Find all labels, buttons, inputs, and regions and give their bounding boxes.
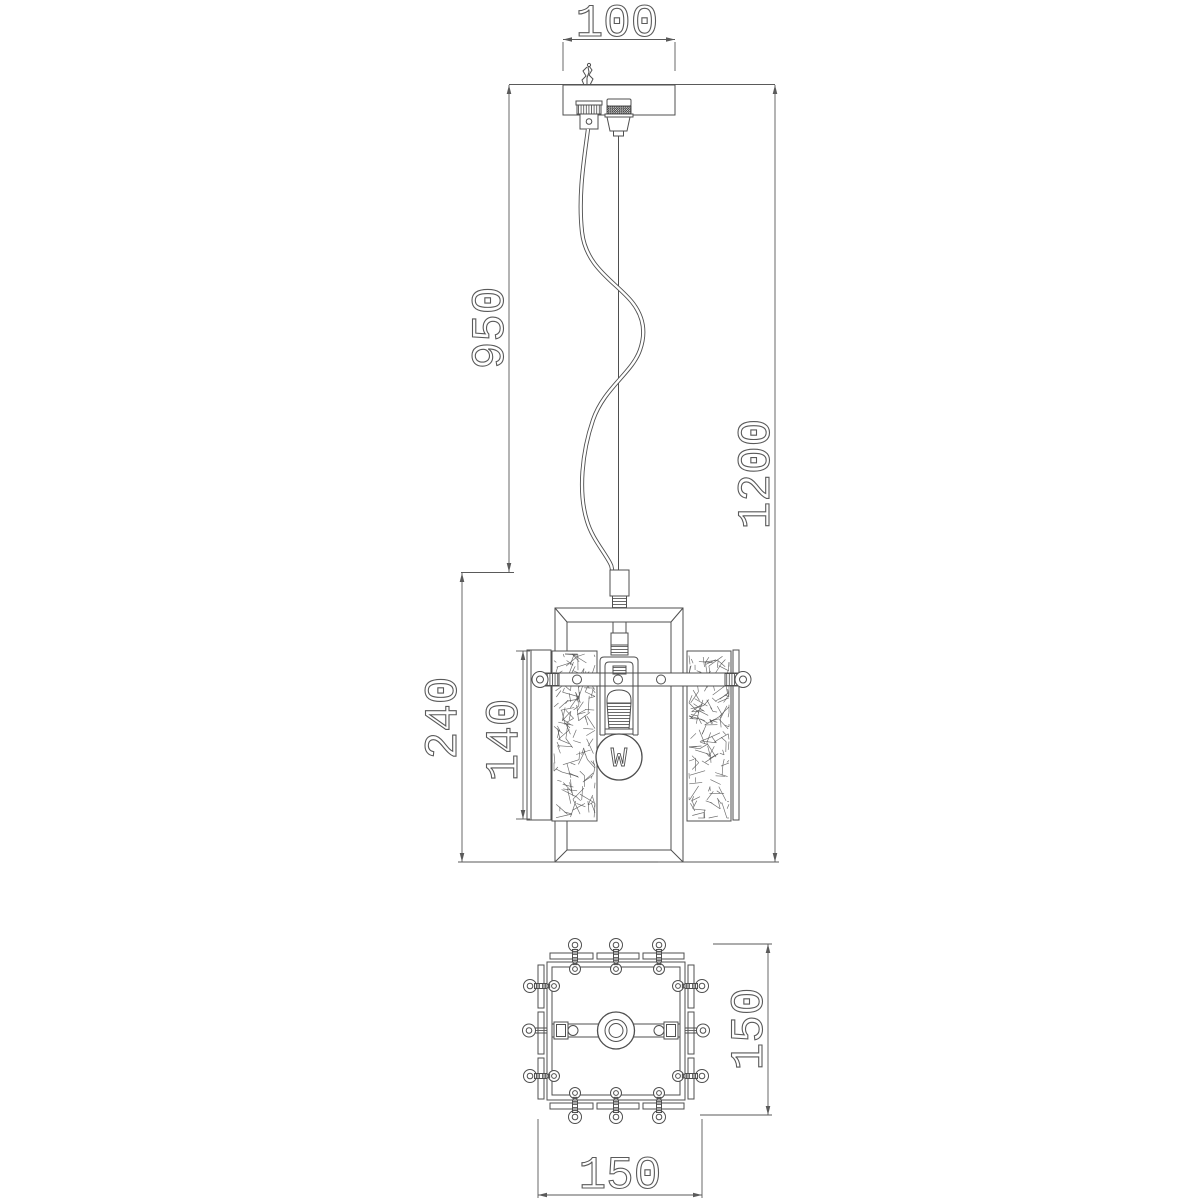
strain-relief-fitting (576, 101, 602, 129)
cable-gland-fitting (605, 99, 633, 136)
socket-bottom (598, 1012, 635, 1049)
dim-label-150-bottom: 150 (579, 1150, 662, 1200)
power-wire (581, 129, 644, 572)
dim-label-240: 240 (418, 677, 470, 760)
dim-base-width: 150 (538, 1119, 702, 1200)
dim-label-150-right: 150 (724, 988, 776, 1071)
bulb-wattage-label: W (611, 745, 628, 775)
technical-drawing-canvas: W 100 950 1200 (0, 0, 1200, 1200)
dim-label-1200: 1200 (731, 419, 783, 529)
light-bulb: W (596, 734, 642, 780)
dim-canopy-width: 100 (563, 0, 675, 71)
drawing-sheet: W 100 950 1200 (0, 0, 1200, 1200)
front-view: W 100 950 1200 (418, 0, 783, 862)
dim-glass-panel-height: 140 (479, 651, 531, 819)
dim-label-950: 950 (465, 287, 517, 370)
rod-knob-right (735, 672, 751, 688)
bottom-view: 150 150 (523, 939, 777, 1200)
mounting-rod (532, 672, 751, 688)
rod-knob-left (532, 672, 548, 688)
base-knob-right (697, 1024, 710, 1037)
dim-label-100: 100 (576, 0, 659, 50)
lamp-socket (605, 690, 633, 734)
stem-inner (611, 622, 628, 655)
base-knob-left (523, 1024, 536, 1037)
dim-suspension-length: 950 (461, 85, 517, 573)
dim-base-depth: 150 (700, 944, 776, 1115)
stem-cord-grip (610, 570, 629, 608)
wire-pigtails (582, 63, 593, 85)
dim-label-140: 140 (479, 699, 531, 782)
